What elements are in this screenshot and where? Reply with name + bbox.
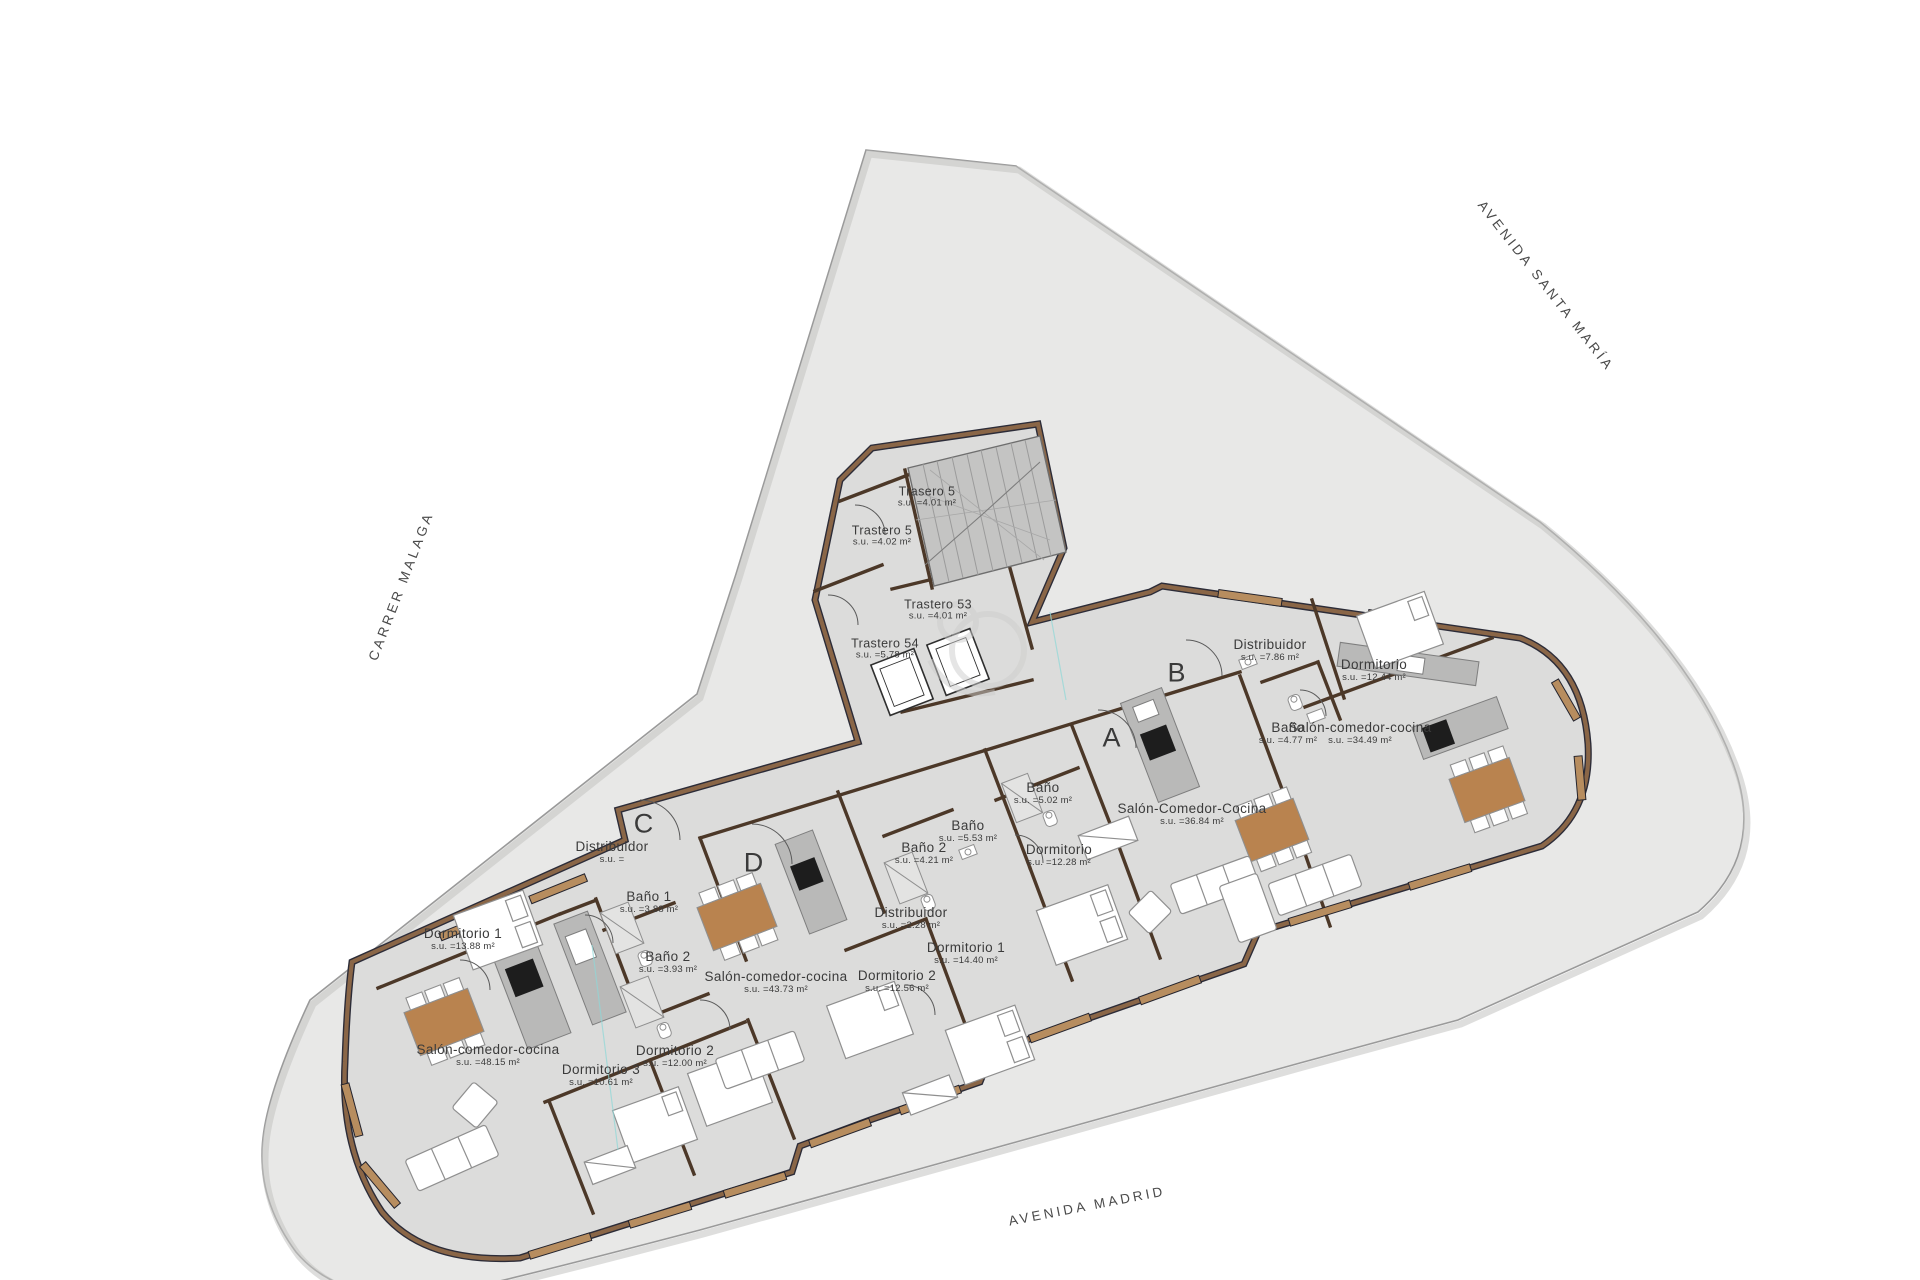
unit-marker-a: A — [1102, 723, 1121, 754]
floor-plan-canvas: Dormitorio 1s.u. =13.88 m² Salón-comedor… — [0, 0, 1920, 1280]
unit-marker-d: D — [744, 848, 765, 879]
unit-marker-b: B — [1167, 658, 1186, 689]
floor-plan-drawing — [0, 0, 1920, 1280]
unit-marker-c: C — [634, 809, 655, 840]
